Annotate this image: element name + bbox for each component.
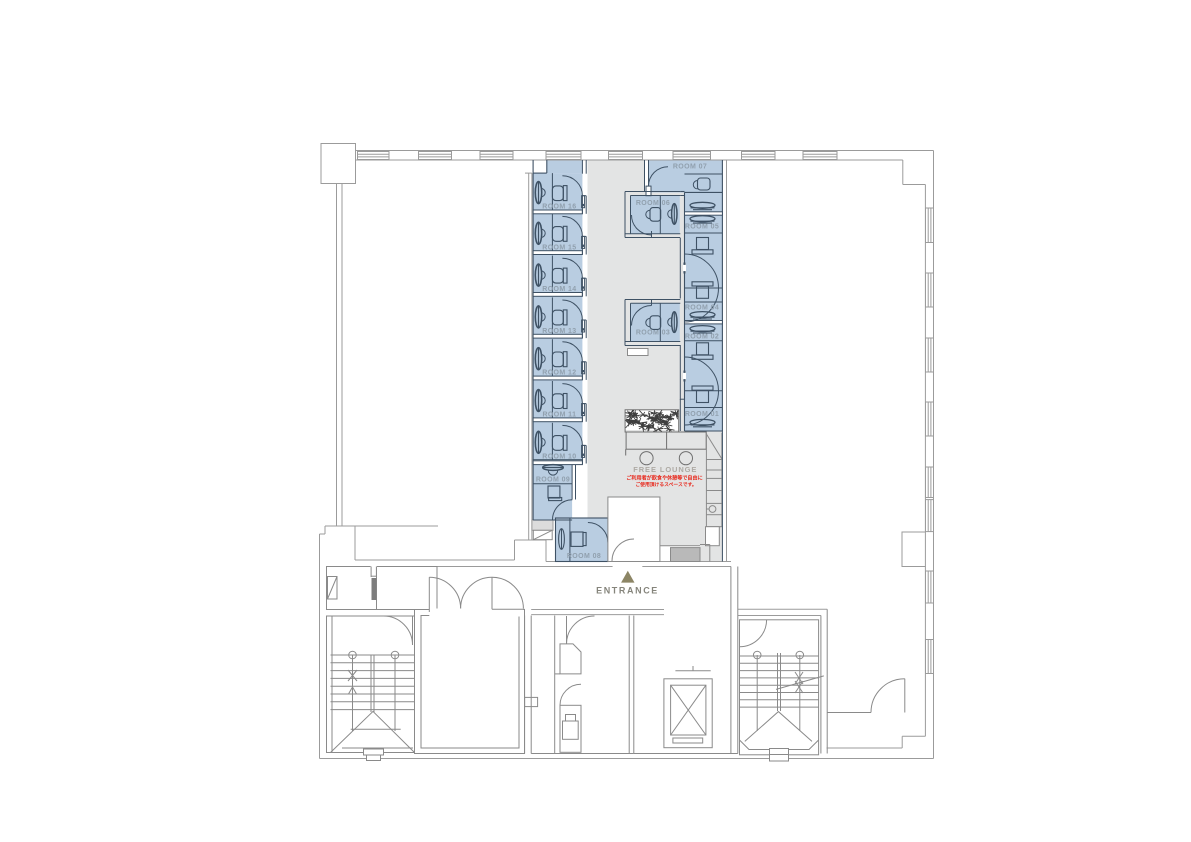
svg-text:ROOM 03: ROOM 03 <box>636 330 670 337</box>
svg-text:ROOM 07: ROOM 07 <box>673 164 707 171</box>
svg-text:ROOM 16: ROOM 16 <box>542 204 576 211</box>
svg-text:ROOM 14: ROOM 14 <box>542 286 576 293</box>
svg-text:ROOM 09: ROOM 09 <box>536 477 570 484</box>
svg-text:ROOM 04: ROOM 04 <box>685 304 719 311</box>
svg-text:ROOM 13: ROOM 13 <box>542 328 576 335</box>
svg-text:ご利用者が飲食や休憩等で自由に: ご利用者が飲食や休憩等で自由に <box>626 475 702 482</box>
svg-text:ROOM 01: ROOM 01 <box>685 411 719 418</box>
svg-text:ROOM 15: ROOM 15 <box>542 244 576 251</box>
svg-text:ROOM 05: ROOM 05 <box>685 223 719 230</box>
svg-text:ROOM 10: ROOM 10 <box>542 453 576 460</box>
svg-text:ROOM 02: ROOM 02 <box>685 333 719 340</box>
svg-text:ROOM 06: ROOM 06 <box>636 200 670 207</box>
svg-text:ROOM 11: ROOM 11 <box>542 412 576 419</box>
svg-text:ご使用頂けるスペースです。: ご使用頂けるスペースです。 <box>635 481 696 488</box>
svg-text:ROOM 08: ROOM 08 <box>567 553 601 560</box>
svg-text:FREE LOUNGE: FREE LOUNGE <box>633 465 697 474</box>
svg-text:ENTRANCE: ENTRANCE <box>596 586 659 596</box>
svg-text:ROOM 12: ROOM 12 <box>542 370 576 377</box>
